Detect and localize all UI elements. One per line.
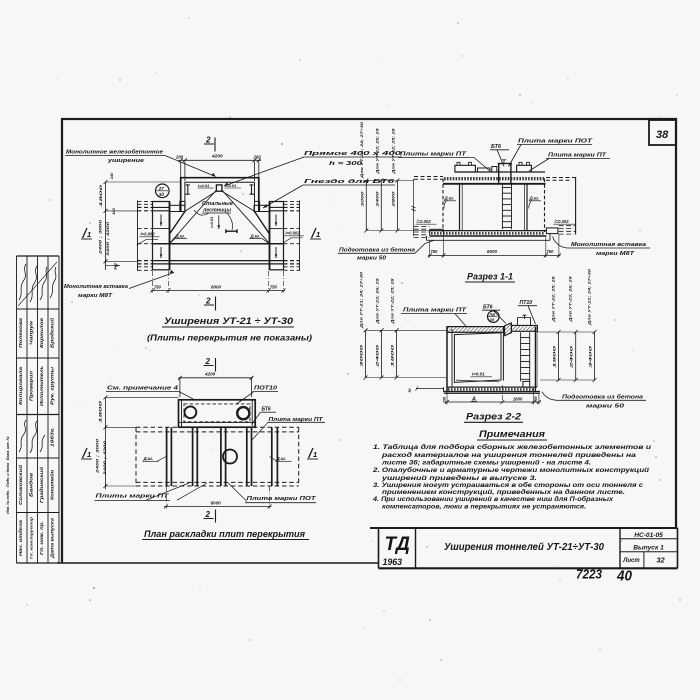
svg-text:А: А (471, 397, 476, 403)
svg-text:200: 200 (175, 155, 184, 160)
svg-text:Д.ш.: Д.ш. (143, 456, 154, 461)
svg-text:4. При использовании уширени: 4. При использовании уширений в качестве… (372, 496, 614, 503)
svg-text:940: 940 (113, 262, 118, 269)
svg-text:Бродский: Бродский (50, 317, 55, 348)
svg-text:Разрез 2-2: Разрез 2-2 (466, 411, 522, 422)
svg-text:Подготовка из бетона: Подготовка из бетона (339, 247, 415, 254)
svg-text:1800: 1800 (390, 343, 395, 367)
svg-text:200: 200 (443, 396, 447, 404)
svg-text:лестницы: лестницы (202, 208, 232, 214)
svg-text:2: 2 (205, 357, 211, 366)
svg-text:3400 ; 4200: 3400 ; 4200 (102, 440, 107, 475)
svg-text:1: 1 (316, 230, 320, 239)
svg-text:ПВ: ПВ (490, 313, 496, 317)
svg-text:2. Опалубочные и арматурные: 2. Опалубочные и арматурные чертежи моно… (372, 467, 650, 474)
svg-text:Плита марки ПТ: Плита марки ПТ (548, 153, 607, 159)
svg-text:расход материалов на уширен: расход материалов на уширения тоннелей п… (381, 452, 637, 459)
svg-text:2400: 2400 (374, 190, 379, 208)
svg-text:750: 750 (547, 249, 555, 254)
svg-text:Плита марки ПОТ: Плита марки ПОТ (247, 496, 317, 502)
svg-text:Дата выпуска: Дата выпуска (50, 517, 55, 559)
svg-text:Для УТ-23; 26; 29: Для УТ-23; 26; 29 (569, 275, 573, 323)
svg-text:Монолитное железобетонное: Монолитное железобетонное (66, 149, 163, 156)
svg-text:Прямое 400 х 400: Прямое 400 х 400 (304, 151, 401, 157)
svg-text:План раскладки плит перекры: План раскладки плит перекрытия (144, 528, 305, 539)
svg-text:Гл. конструктор: Гл. конструктор (30, 516, 34, 559)
svg-text:750: 750 (431, 249, 439, 254)
svg-text:2400: 2400 (375, 343, 380, 370)
svg-text:3400: 3400 (588, 344, 593, 368)
svg-text:Плиты марки ПТ: Плиты марки ПТ (96, 493, 170, 499)
svg-text:1: 1 (87, 450, 91, 459)
svg-text:2: 2 (205, 297, 211, 306)
svg-text:ТД: ТД (385, 534, 411, 555)
svg-text:3д: 3д (490, 318, 495, 322)
svg-text:340: 340 (111, 207, 116, 214)
svg-text:Для УТ-21; 24; 27÷30: Для УТ-21; 24; 27÷30 (588, 268, 592, 327)
svg-text:1800: 1800 (98, 399, 103, 423)
svg-text:Градинский: Градинский (39, 466, 44, 503)
svg-text:200: 200 (253, 155, 262, 160)
svg-text:Плита марки ПТ: Плита марки ПТ (403, 308, 467, 314)
svg-text:марки М8Т: марки М8Т (78, 293, 113, 299)
svg-text:Уширения тоннелей УТ-21÷УТ-3: Уширения тоннелей УТ-21÷УТ-30 (444, 541, 604, 553)
svg-text:i=0.002: i=0.002 (555, 219, 570, 224)
svg-text:3. Уширения могут устраивать: 3. Уширения могут устраиваться в обе сто… (373, 482, 644, 489)
svg-text:НС-01-05: НС-01-05 (634, 532, 663, 539)
svg-text:Для УТ-22; 25; 28: Для УТ-22; 25; 28 (552, 275, 556, 323)
svg-text:6000: 6000 (487, 249, 498, 254)
svg-text:6000: 6000 (211, 285, 222, 290)
svg-text:2400 ; 3000: 2400 ; 3000 (98, 219, 103, 256)
svg-text:ПОТ10: ПОТ10 (254, 386, 277, 392)
svg-text:i=0.01: i=0.01 (472, 371, 485, 376)
svg-text:применением конструкций, прив: применением конструкций, приведенных на … (382, 489, 625, 496)
svg-text:Конштейн: Конштейн (50, 469, 55, 500)
svg-text:2800: 2800 (391, 190, 396, 208)
svg-text:Плиты марки ПТ: Плиты марки ПТ (400, 152, 467, 158)
svg-text:200: 200 (534, 395, 538, 403)
svg-text:Инв. № подл. Подп. и дата: Инв. № подл. Подп. и дата Взам. инв. № (6, 436, 10, 513)
svg-text:6000: 6000 (211, 501, 222, 506)
svg-text:1. Таблица для подбора сбор: 1. Таблица для подбора сборных железобет… (373, 444, 651, 451)
svg-text:Копировала: Копировала (18, 366, 23, 405)
svg-text:Уширения УТ-21 ÷ УТ-30: Уширения УТ-21 ÷ УТ-30 (164, 316, 294, 327)
svg-text:марки 50: марки 50 (357, 256, 386, 262)
svg-text:Бандов: Бандов (29, 472, 34, 497)
svg-text:См. примечание 4: См. примечание 4 (107, 386, 178, 392)
svg-text:Для УТ-21; 24; 27÷30: Для УТ-21; 24; 27÷30 (360, 121, 364, 180)
svg-text:Для УТ-23; 26; 29: Для УТ-23; 26; 29 (375, 127, 379, 175)
svg-text:Для УТ-22; 25; 28: Для УТ-22; 25; 28 (391, 277, 395, 325)
svg-text:Монолитная вставка: Монолитная вставка (64, 284, 128, 290)
svg-text:3400 ; 4200: 3400 ; 4200 (105, 221, 110, 256)
svg-text:750: 750 (270, 285, 278, 290)
svg-text:марки 50: марки 50 (586, 403, 624, 409)
svg-text:Монолитная вставка: Монолитная вставка (571, 242, 646, 248)
svg-text:1963: 1963 (383, 557, 403, 567)
svg-text:Корнилов: Корнилов (39, 317, 44, 348)
svg-text:Примечания: Примечания (479, 429, 546, 439)
svg-text:компенсаторов, люки в перекр: компенсаторов, люки в перекрытиях не уст… (382, 503, 586, 510)
svg-text:2: 2 (205, 136, 211, 145)
svg-text:Исполнитель: Исполнитель (39, 365, 44, 406)
svg-text:1800: 1800 (513, 397, 523, 402)
svg-text:Гл. инж. пр.: Гл. инж. пр. (39, 521, 44, 555)
svg-text:1: 1 (313, 450, 317, 459)
svg-text:i=0.002: i=0.002 (417, 219, 432, 224)
svg-text:4200: 4200 (211, 154, 223, 160)
svg-text:листе 36; габаритные схемы: листе 36; габаритные схемы уширений - на… (381, 460, 592, 467)
svg-text:Д.ш.: Д.ш. (175, 233, 186, 238)
svg-text:(Плиты перекрытия не показа: (Плиты перекрытия не показаны) (147, 333, 312, 343)
svg-text:Д.ш.: Д.ш. (250, 233, 261, 238)
svg-text:Д.ш.: Д.ш. (444, 196, 455, 201)
svg-text:Соликовский: Соликовский (18, 464, 23, 505)
svg-text:Проверил: Проверил (29, 371, 34, 401)
svg-text:40: 40 (616, 569, 632, 585)
svg-text:140: 140 (109, 172, 114, 179)
svg-text:7223: 7223 (576, 568, 602, 582)
svg-text:Чапрун: Чапрун (29, 320, 34, 345)
svg-text:1800: 1800 (552, 344, 557, 368)
svg-text:3д: 3д (159, 192, 164, 197)
svg-text:i=0.01: i=0.01 (209, 216, 214, 228)
svg-text:3000: 3000 (359, 343, 364, 367)
svg-text:750: 750 (154, 285, 162, 290)
svg-text:i=0.002: i=0.002 (286, 231, 301, 236)
svg-text:Рук. группы: Рук. группы (50, 367, 55, 405)
svg-text:БТ6: БТ6 (491, 144, 502, 150)
svg-text:Д.ш.: Д.ш. (529, 196, 540, 201)
svg-text:2400: 2400 (569, 344, 574, 371)
svg-text:27: 27 (158, 186, 164, 191)
svg-text:марки М8Т: марки М8Т (596, 251, 635, 257)
svg-text:Лист: Лист (622, 558, 640, 564)
svg-text:h = 300: h = 300 (329, 161, 362, 167)
svg-text:Нач. отдела: Нач. отдела (18, 519, 23, 556)
svg-text:Полякова: Полякова (18, 317, 23, 348)
svg-text:Плита марки ПОТ: Плита марки ПОТ (518, 139, 593, 145)
svg-text:уширение: уширение (107, 158, 144, 164)
svg-text:Для УТ-21; 24; 27÷30: Для УТ-21; 24; 27÷30 (359, 271, 363, 330)
svg-text:Выпуск 1: Выпуск 1 (633, 544, 664, 551)
svg-text:i=0.01: i=0.01 (198, 183, 210, 188)
svg-text:Д.ш.: Д.ш. (276, 456, 287, 461)
svg-text:1963г.: 1963г. (50, 427, 55, 447)
svg-text:38: 38 (656, 129, 669, 141)
svg-text:Подготовка из бетона: Подготовка из бетона (562, 393, 643, 400)
svg-text:Для УТ-22; 25; 28: Для УТ-22; 25; 28 (392, 127, 396, 175)
svg-text:Стальные: Стальные (202, 201, 233, 207)
svg-text:Разрез 1-1: Разрез 1-1 (467, 271, 513, 282)
svg-text:4200: 4200 (204, 372, 216, 377)
svg-text:Для УТ-23; 26; 29: Для УТ-23; 26; 29 (376, 277, 380, 325)
svg-text:i=0.002: i=0.002 (141, 232, 156, 237)
svg-text:уширений приведены в выпуск: уширений приведены в выпуске 3. (381, 475, 538, 482)
svg-text:2400 ; 3000: 2400 ; 3000 (95, 438, 100, 475)
svg-text:1: 1 (87, 230, 91, 239)
svg-text:3000: 3000 (359, 190, 364, 206)
svg-text:2: 2 (205, 510, 211, 519)
svg-text:32: 32 (656, 556, 665, 565)
svg-text:50: 50 (408, 389, 412, 393)
svg-text:1800: 1800 (98, 183, 103, 207)
